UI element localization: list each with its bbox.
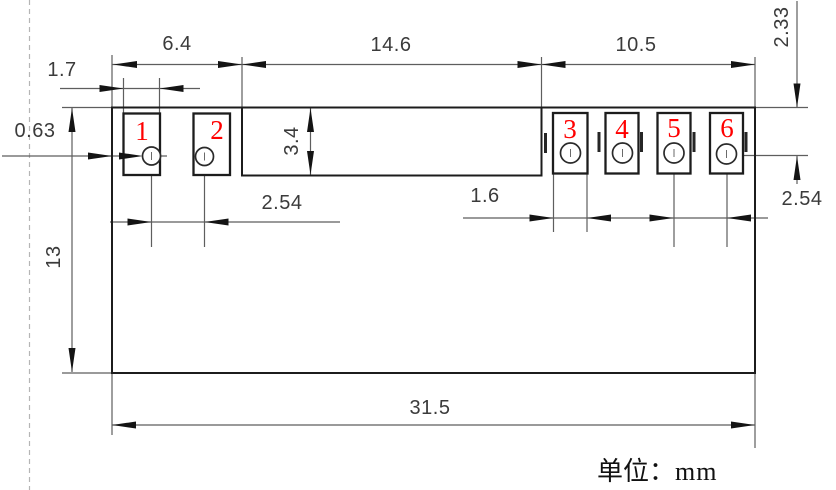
pad-2-number: 2	[202, 115, 232, 145]
dim-middle-block-height: 3.4	[281, 106, 303, 176]
unit-note-value: mm	[675, 457, 717, 486]
extension-lines	[62, 1, 808, 448]
dim-right-pad-pitch: 2.54	[767, 188, 836, 210]
dim-right-pad-width: 1.6	[450, 185, 520, 207]
dim-body-height: 13	[43, 222, 65, 292]
dim-top-to-hole: 2.33	[771, 0, 793, 62]
pad-3-number: 3	[555, 114, 585, 144]
pad-5-number: 5	[659, 113, 689, 143]
dim-left-edge-to-pad: 0.63	[0, 120, 70, 142]
arrowhead-top-to-hole	[794, 84, 801, 108]
dim-overall-width: 31.5	[395, 397, 465, 419]
dim-left-pad-width: 1.7	[27, 59, 97, 81]
dim-left-pad-pitch: 2.54	[247, 192, 317, 214]
dimension-lines	[2, 65, 768, 426]
pad-6-number: 6	[712, 113, 742, 143]
dim-left-section-width: 6.4	[142, 33, 212, 55]
pad-4-number: 4	[607, 114, 637, 144]
unit-note-prefix: 单位：	[597, 456, 675, 486]
arrowhead-right-pitch	[794, 156, 801, 180]
dim-right-section-width: 10.5	[601, 34, 671, 56]
drawing-canvas: 6.4 14.6 10.5 1.7 0.63 3.4 13 2.54 1.6 2…	[0, 0, 836, 490]
dim-middle-section-width: 14.6	[356, 34, 426, 56]
unit-note: 单位：mm	[597, 451, 717, 488]
pad-1-number: 1	[127, 116, 157, 146]
